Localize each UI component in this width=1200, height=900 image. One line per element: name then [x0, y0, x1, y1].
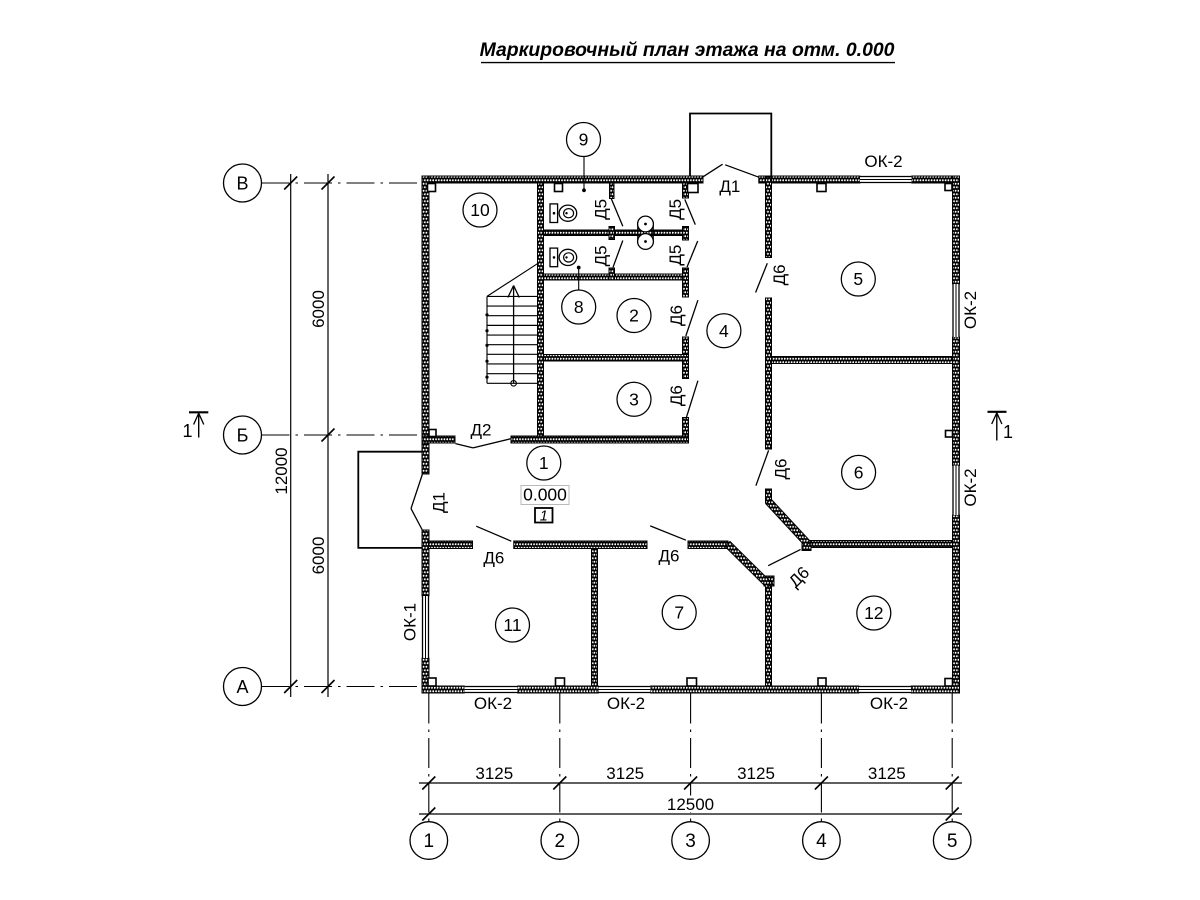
svg-text:ОК-1: ОК-1	[401, 603, 420, 641]
svg-text:Д5: Д5	[592, 245, 611, 266]
svg-text:В: В	[236, 173, 248, 193]
svg-text:10: 10	[470, 200, 490, 220]
svg-text:1: 1	[182, 421, 192, 441]
svg-text:ОК-2: ОК-2	[870, 694, 908, 713]
svg-text:4: 4	[816, 831, 827, 852]
svg-text:3125: 3125	[475, 764, 513, 783]
svg-text:Д1: Д1	[719, 177, 740, 196]
svg-text:1: 1	[424, 831, 435, 852]
svg-text:3: 3	[685, 831, 696, 852]
svg-text:Д2: Д2	[471, 421, 492, 440]
svg-text:9: 9	[579, 130, 589, 150]
svg-text:1: 1	[1003, 422, 1013, 442]
svg-text:ОК-2: ОК-2	[961, 468, 980, 506]
svg-text:0.000: 0.000	[523, 485, 567, 505]
svg-text:Д6: Д6	[667, 385, 686, 406]
svg-text:3125: 3125	[606, 764, 644, 783]
svg-text:11: 11	[503, 615, 521, 635]
svg-text:Д6: Д6	[483, 549, 504, 568]
svg-text:Б: Б	[237, 425, 249, 445]
svg-text:Д5: Д5	[592, 199, 611, 220]
svg-text:3125: 3125	[737, 764, 775, 783]
svg-text:6000: 6000	[309, 290, 328, 328]
svg-text:2: 2	[629, 306, 639, 326]
svg-text:ОК-2: ОК-2	[607, 694, 645, 713]
svg-text:2: 2	[555, 831, 566, 852]
svg-text:6: 6	[854, 463, 864, 483]
svg-text:4: 4	[719, 321, 729, 341]
svg-text:Д6: Д6	[659, 547, 680, 566]
svg-text:Д6: Д6	[770, 264, 789, 285]
svg-text:Д6: Д6	[667, 305, 686, 326]
svg-text:12: 12	[864, 603, 883, 623]
svg-text:Д1: Д1	[430, 492, 449, 513]
svg-text:7: 7	[674, 603, 684, 623]
svg-text:3125: 3125	[868, 764, 906, 783]
svg-text:6000: 6000	[309, 537, 328, 575]
svg-text:5: 5	[853, 269, 863, 289]
svg-text:ОК-2: ОК-2	[961, 291, 980, 329]
svg-text:Д6: Д6	[772, 459, 791, 480]
svg-text:Маркировочный план этажа на от: Маркировочный план этажа на отм. 0.000	[480, 39, 895, 61]
svg-text:12500: 12500	[667, 795, 714, 814]
svg-text:А: А	[236, 677, 248, 697]
svg-text:1: 1	[539, 453, 549, 473]
svg-text:8: 8	[574, 297, 584, 317]
svg-text:ОК-2: ОК-2	[474, 694, 512, 713]
svg-text:12000: 12000	[272, 447, 291, 494]
svg-text:5: 5	[947, 831, 958, 852]
svg-text:1: 1	[540, 508, 548, 524]
svg-text:ОК-2: ОК-2	[864, 152, 902, 171]
svg-text:Д5: Д5	[666, 199, 685, 220]
svg-text:3: 3	[629, 390, 639, 410]
svg-text:Д5: Д5	[666, 245, 685, 266]
